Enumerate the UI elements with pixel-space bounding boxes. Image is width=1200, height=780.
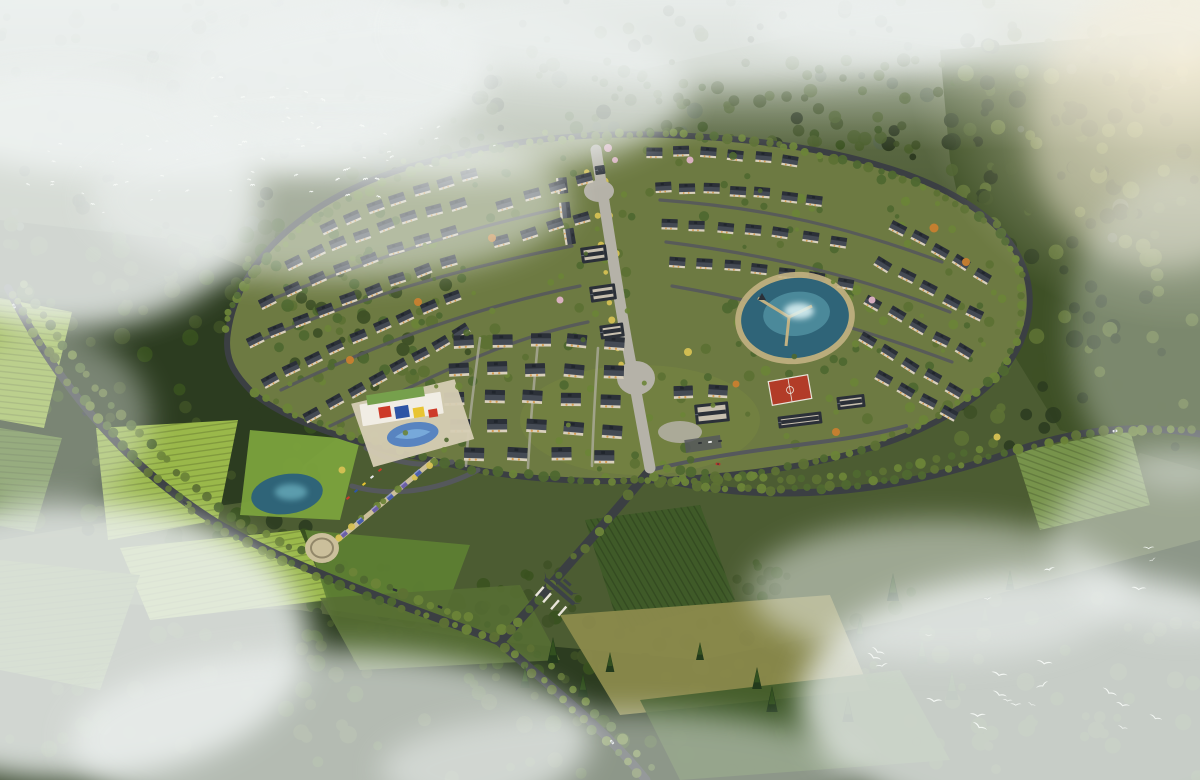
street-tree bbox=[525, 605, 533, 613]
street-tree bbox=[890, 475, 899, 484]
villa-dormer bbox=[702, 259, 705, 261]
street-tree bbox=[838, 155, 848, 165]
villa-dormer bbox=[675, 258, 678, 260]
villa-house bbox=[669, 257, 686, 269]
kindergarten-blue-block bbox=[394, 405, 410, 419]
street-tree bbox=[349, 568, 358, 577]
street-tree bbox=[462, 624, 472, 634]
street-tree bbox=[371, 578, 381, 588]
street-tree bbox=[275, 537, 285, 547]
street-tree bbox=[686, 467, 697, 478]
tree-canopy bbox=[905, 402, 915, 412]
street-tree bbox=[144, 468, 153, 477]
street-tree bbox=[317, 420, 324, 427]
tree-canopy bbox=[174, 384, 186, 396]
street-tree bbox=[570, 553, 576, 559]
tree-canopy bbox=[935, 201, 940, 206]
street-tree bbox=[398, 605, 406, 613]
street-tree bbox=[638, 477, 645, 484]
villa-house bbox=[730, 186, 747, 198]
tree-canopy bbox=[879, 316, 888, 325]
street-tree bbox=[394, 486, 401, 493]
villa-house bbox=[661, 219, 677, 230]
street-tree bbox=[541, 677, 547, 683]
villa-house bbox=[526, 419, 547, 433]
street-tree bbox=[375, 596, 384, 605]
villa-roof-slope bbox=[551, 452, 571, 458]
street-tree bbox=[1060, 436, 1068, 444]
street-tree bbox=[398, 588, 409, 599]
tree-canopy bbox=[839, 357, 848, 366]
tree-canopy bbox=[227, 471, 236, 480]
street-tree bbox=[534, 651, 542, 659]
tree-canopy bbox=[809, 205, 815, 211]
street-tree bbox=[820, 454, 828, 462]
tree-canopy bbox=[862, 413, 873, 424]
tree-canopy bbox=[761, 366, 771, 376]
bird bbox=[210, 125, 212, 126]
tree-canopy bbox=[336, 327, 344, 335]
street-tree bbox=[839, 473, 847, 481]
street-tree bbox=[336, 427, 345, 436]
street-tree bbox=[865, 470, 872, 477]
street-tree bbox=[608, 317, 615, 324]
villa-house bbox=[724, 260, 741, 272]
villa-wall bbox=[594, 461, 614, 464]
aerial-rendering-stage bbox=[0, 0, 1200, 780]
street-tree bbox=[558, 673, 565, 680]
tree-canopy bbox=[327, 363, 335, 371]
villa-wall bbox=[552, 457, 572, 460]
tree-canopy bbox=[852, 340, 859, 347]
villa-house bbox=[602, 424, 623, 439]
street-tree bbox=[919, 415, 929, 425]
villa-window bbox=[599, 461, 601, 463]
street-tree bbox=[1013, 444, 1024, 455]
villa-dormer bbox=[494, 362, 498, 365]
villa-roof-slope bbox=[594, 455, 614, 461]
street-tree bbox=[439, 618, 449, 628]
villa-dormer bbox=[667, 220, 670, 222]
street-tree bbox=[1015, 329, 1021, 335]
tree-canopy bbox=[990, 409, 1005, 424]
villa-dormer bbox=[787, 193, 790, 196]
tree-canopy bbox=[570, 651, 579, 660]
villa-dormer bbox=[680, 387, 684, 390]
villa-dormer bbox=[514, 448, 518, 451]
street-tree bbox=[153, 474, 162, 483]
tree-canopy bbox=[584, 252, 588, 256]
villa-wall bbox=[561, 403, 581, 406]
tree-canopy bbox=[333, 313, 343, 323]
street-tree bbox=[757, 484, 767, 494]
villa-house bbox=[781, 191, 798, 203]
tree-canopy bbox=[441, 447, 447, 453]
street-tree bbox=[854, 483, 861, 490]
street-tree bbox=[439, 458, 450, 469]
villa-house bbox=[679, 183, 695, 194]
street-tree bbox=[1003, 357, 1011, 365]
street-tree bbox=[277, 556, 288, 567]
villa-dormer bbox=[812, 196, 815, 199]
villa-house bbox=[673, 385, 693, 398]
street-tree bbox=[202, 492, 212, 502]
tree-canopy bbox=[978, 337, 984, 343]
tree-canopy bbox=[903, 302, 913, 312]
tree-canopy bbox=[981, 342, 986, 347]
courtyard-building bbox=[594, 165, 605, 175]
street-tree bbox=[620, 477, 627, 484]
villa-house bbox=[717, 222, 734, 234]
villa-dormer bbox=[724, 223, 727, 226]
villa-house bbox=[449, 363, 470, 377]
villa-house bbox=[750, 263, 767, 275]
street-tree bbox=[827, 473, 834, 480]
tree-canopy bbox=[732, 575, 741, 584]
street-tree bbox=[262, 394, 270, 402]
street-tree bbox=[623, 490, 634, 501]
villa-window bbox=[542, 344, 544, 346]
tree-canopy bbox=[948, 225, 956, 233]
tree-canopy bbox=[1032, 367, 1048, 383]
tree-canopy bbox=[436, 312, 443, 319]
street-tree bbox=[659, 476, 667, 484]
villa-roof-slope bbox=[525, 368, 545, 374]
car-glass bbox=[717, 463, 719, 465]
villa-house bbox=[531, 333, 551, 346]
tree-canopy bbox=[1066, 404, 1074, 412]
tree-canopy bbox=[585, 449, 592, 456]
street-tree bbox=[915, 458, 926, 469]
villa-roof-slope bbox=[531, 338, 551, 344]
villa-dormer bbox=[492, 391, 496, 394]
tree-canopy bbox=[830, 355, 838, 363]
street-tree bbox=[603, 270, 608, 275]
street-tree bbox=[1044, 438, 1053, 447]
street-tree bbox=[816, 152, 823, 159]
villa-window bbox=[497, 345, 499, 347]
tree-canopy bbox=[1038, 353, 1047, 362]
tree-canopy bbox=[721, 181, 728, 188]
villa-house bbox=[600, 394, 620, 408]
villa-wall bbox=[487, 372, 507, 375]
street-tree bbox=[538, 471, 549, 482]
street-tree bbox=[297, 546, 306, 555]
street-tree bbox=[630, 475, 638, 483]
tree-canopy bbox=[418, 319, 425, 326]
villa-dormer bbox=[757, 264, 760, 267]
street-tree bbox=[737, 483, 746, 492]
street-tree bbox=[798, 475, 806, 483]
villa-house bbox=[464, 447, 484, 461]
villa-house bbox=[453, 335, 474, 349]
tree-canopy bbox=[432, 277, 436, 281]
tree-canopy bbox=[281, 299, 294, 312]
street-tree bbox=[580, 544, 589, 553]
tree-canopy bbox=[642, 381, 647, 386]
tree-canopy bbox=[920, 314, 925, 319]
street-tree bbox=[524, 469, 534, 479]
tree-canopy bbox=[945, 268, 952, 275]
street-tree bbox=[300, 564, 308, 572]
tree-canopy bbox=[742, 245, 746, 249]
street-tree bbox=[759, 474, 767, 482]
tree-canopy bbox=[287, 381, 292, 386]
villa-house bbox=[594, 450, 614, 463]
tree-canopy bbox=[1038, 422, 1050, 434]
street-tree bbox=[960, 449, 968, 457]
villa-roof-slope bbox=[487, 424, 507, 430]
villa-house bbox=[604, 365, 624, 379]
courtyard-wing bbox=[598, 168, 603, 173]
tree-canopy bbox=[680, 412, 685, 417]
tree-canopy bbox=[658, 372, 666, 380]
street-tree bbox=[527, 644, 535, 652]
tree-canopy bbox=[619, 210, 627, 218]
tree-canopy bbox=[480, 337, 492, 349]
street-tree bbox=[464, 612, 474, 622]
villa-roof-slope bbox=[493, 339, 513, 345]
villa-dormer bbox=[499, 335, 503, 338]
tree-canopy bbox=[991, 290, 997, 296]
accent-tree bbox=[962, 258, 970, 266]
street-tree bbox=[593, 479, 600, 486]
street-tree bbox=[771, 467, 780, 476]
street-tree bbox=[493, 466, 504, 477]
street-tree bbox=[930, 465, 939, 474]
street-tree bbox=[511, 650, 519, 658]
street-tree bbox=[853, 160, 862, 169]
accent-tree bbox=[687, 157, 694, 164]
tree-canopy bbox=[783, 433, 789, 439]
street-tree bbox=[567, 476, 574, 483]
street-tree bbox=[915, 423, 922, 430]
tree-canopy bbox=[547, 279, 554, 286]
tree-canopy bbox=[628, 213, 636, 221]
street-tree bbox=[180, 472, 190, 482]
street-tree bbox=[286, 544, 292, 550]
street-tree bbox=[205, 519, 211, 525]
aerial-villa-community-rendering bbox=[0, 0, 1200, 780]
villa-dormer bbox=[785, 269, 788, 272]
villa-window bbox=[572, 404, 574, 406]
tree-canopy bbox=[877, 348, 882, 353]
kindergarten-red-block bbox=[378, 406, 392, 419]
street-tree bbox=[899, 176, 907, 184]
tree-canopy bbox=[630, 458, 640, 468]
street-tree bbox=[282, 403, 292, 413]
bird bbox=[166, 141, 168, 142]
tree-canopy bbox=[826, 395, 834, 403]
tree-canopy bbox=[795, 227, 799, 231]
street-tree bbox=[734, 474, 742, 482]
street-tree bbox=[427, 602, 435, 610]
accent-tree bbox=[994, 434, 1001, 441]
tree-canopy bbox=[574, 303, 584, 313]
tree-canopy bbox=[777, 241, 784, 248]
street-tree bbox=[426, 462, 433, 469]
accent-tree bbox=[612, 157, 618, 163]
street-tree bbox=[496, 624, 507, 635]
street-tree bbox=[889, 431, 896, 438]
villa-wall bbox=[679, 192, 695, 195]
tree-canopy bbox=[744, 371, 755, 382]
pond-reflection bbox=[784, 303, 814, 319]
street-tree bbox=[894, 464, 902, 472]
street-tree bbox=[467, 466, 476, 475]
street-tree bbox=[452, 611, 462, 621]
villa-house bbox=[806, 194, 823, 207]
villa-dormer bbox=[460, 336, 464, 339]
villa-dormer bbox=[611, 366, 615, 369]
villa-roof-slope bbox=[561, 398, 581, 404]
villa-house bbox=[688, 221, 704, 232]
villa-roof-slope bbox=[661, 223, 677, 228]
tree-canopy bbox=[410, 369, 417, 376]
villa-dormer bbox=[532, 364, 536, 367]
tree-canopy bbox=[741, 199, 748, 206]
street-tree bbox=[534, 595, 544, 605]
street-tree bbox=[701, 469, 709, 477]
street-tree bbox=[1017, 301, 1026, 310]
street-tree bbox=[710, 482, 721, 493]
street-tree bbox=[214, 502, 224, 512]
street-tree bbox=[983, 377, 993, 387]
villa-dormer bbox=[694, 222, 697, 224]
street-tree bbox=[831, 451, 841, 461]
street-tree bbox=[414, 595, 424, 605]
villa-dormer bbox=[534, 420, 538, 423]
street-tree bbox=[963, 394, 971, 402]
villa-house bbox=[655, 182, 672, 194]
tree-canopy bbox=[274, 342, 284, 352]
street-tree bbox=[954, 400, 960, 406]
villa-house bbox=[487, 361, 507, 375]
tree-canopy bbox=[687, 456, 695, 464]
tree-canopy bbox=[247, 407, 262, 422]
tree-canopy bbox=[434, 384, 438, 388]
villa-window bbox=[492, 430, 494, 432]
villa-dormer bbox=[751, 225, 754, 227]
street-tree bbox=[880, 434, 887, 441]
street-tree bbox=[812, 475, 822, 485]
tree-canopy bbox=[182, 329, 198, 345]
street-tree bbox=[387, 597, 396, 606]
villa-house bbox=[507, 447, 528, 461]
street-tree bbox=[513, 632, 522, 641]
street-tree bbox=[726, 475, 732, 481]
tree-canopy bbox=[701, 344, 711, 354]
tree-canopy bbox=[576, 262, 584, 270]
kindergarten-red-block bbox=[428, 408, 438, 417]
villa-dormer bbox=[529, 391, 533, 394]
bird bbox=[310, 191, 313, 192]
tree-canopy bbox=[831, 280, 836, 285]
tree-canopy bbox=[556, 437, 563, 444]
street-tree bbox=[577, 478, 584, 485]
tree-canopy bbox=[986, 260, 994, 268]
villa-roof-slope bbox=[604, 370, 624, 376]
street-tree bbox=[825, 481, 835, 491]
villa-dormer bbox=[456, 364, 460, 367]
street-tree bbox=[681, 478, 689, 486]
street-tree bbox=[722, 486, 728, 492]
street-tree bbox=[346, 432, 355, 441]
street-tree bbox=[595, 213, 601, 219]
villa-dormer bbox=[608, 396, 612, 399]
tree-canopy bbox=[984, 317, 994, 327]
tree-canopy bbox=[316, 640, 327, 651]
villa-dormer bbox=[709, 184, 712, 186]
street-tree bbox=[335, 564, 345, 574]
street-tree bbox=[766, 486, 776, 496]
street-tree bbox=[911, 177, 921, 187]
street-tree bbox=[595, 527, 604, 536]
tree-canopy bbox=[820, 365, 829, 374]
tree-canopy bbox=[418, 366, 430, 378]
tree-canopy bbox=[570, 170, 577, 177]
street-tree bbox=[483, 469, 490, 476]
villa-roof-slope bbox=[464, 452, 484, 458]
street-tree bbox=[1017, 320, 1024, 327]
street-tree bbox=[506, 624, 516, 634]
villa-roof-slope bbox=[600, 399, 620, 405]
villa-dormer bbox=[684, 184, 687, 186]
tree-canopy bbox=[1058, 310, 1071, 323]
street-tree bbox=[608, 478, 616, 486]
street-tree bbox=[846, 449, 854, 457]
street-tree bbox=[745, 485, 752, 492]
villa-wall bbox=[531, 344, 551, 347]
tree-canopy bbox=[877, 175, 887, 185]
tree-canopy bbox=[313, 328, 323, 338]
street-tree bbox=[334, 580, 345, 591]
tree-canopy bbox=[792, 354, 798, 360]
tree-canopy bbox=[444, 438, 449, 443]
tree-canopy bbox=[396, 343, 409, 356]
tree-canopy bbox=[699, 211, 709, 221]
tree-canopy bbox=[559, 380, 568, 389]
tree-canopy bbox=[736, 341, 742, 347]
villa-house bbox=[708, 384, 728, 398]
street-tree bbox=[803, 484, 810, 491]
tree-canopy bbox=[312, 608, 322, 618]
villa-house bbox=[563, 363, 584, 378]
villa-dormer bbox=[715, 386, 719, 389]
street-tree bbox=[881, 477, 888, 484]
street-tree bbox=[998, 365, 1009, 376]
street-tree bbox=[973, 455, 982, 464]
tree-canopy bbox=[909, 154, 916, 161]
street-tree bbox=[1001, 449, 1008, 456]
villa-wall bbox=[487, 429, 507, 432]
tree-canopy bbox=[887, 205, 894, 212]
street-tree bbox=[863, 162, 873, 172]
street-tree bbox=[226, 512, 236, 522]
street-tree bbox=[380, 498, 386, 504]
street-tree bbox=[945, 465, 952, 472]
tree-canopy bbox=[722, 303, 733, 314]
street-tree bbox=[247, 524, 258, 535]
villa-dormer bbox=[571, 422, 575, 425]
accent-tree bbox=[869, 297, 876, 304]
street-tree bbox=[1086, 429, 1095, 438]
tree-canopy bbox=[1029, 329, 1044, 344]
street-tree bbox=[918, 471, 926, 479]
villa-dormer bbox=[571, 365, 575, 368]
street-tree bbox=[415, 610, 421, 616]
street-tree bbox=[362, 591, 372, 601]
